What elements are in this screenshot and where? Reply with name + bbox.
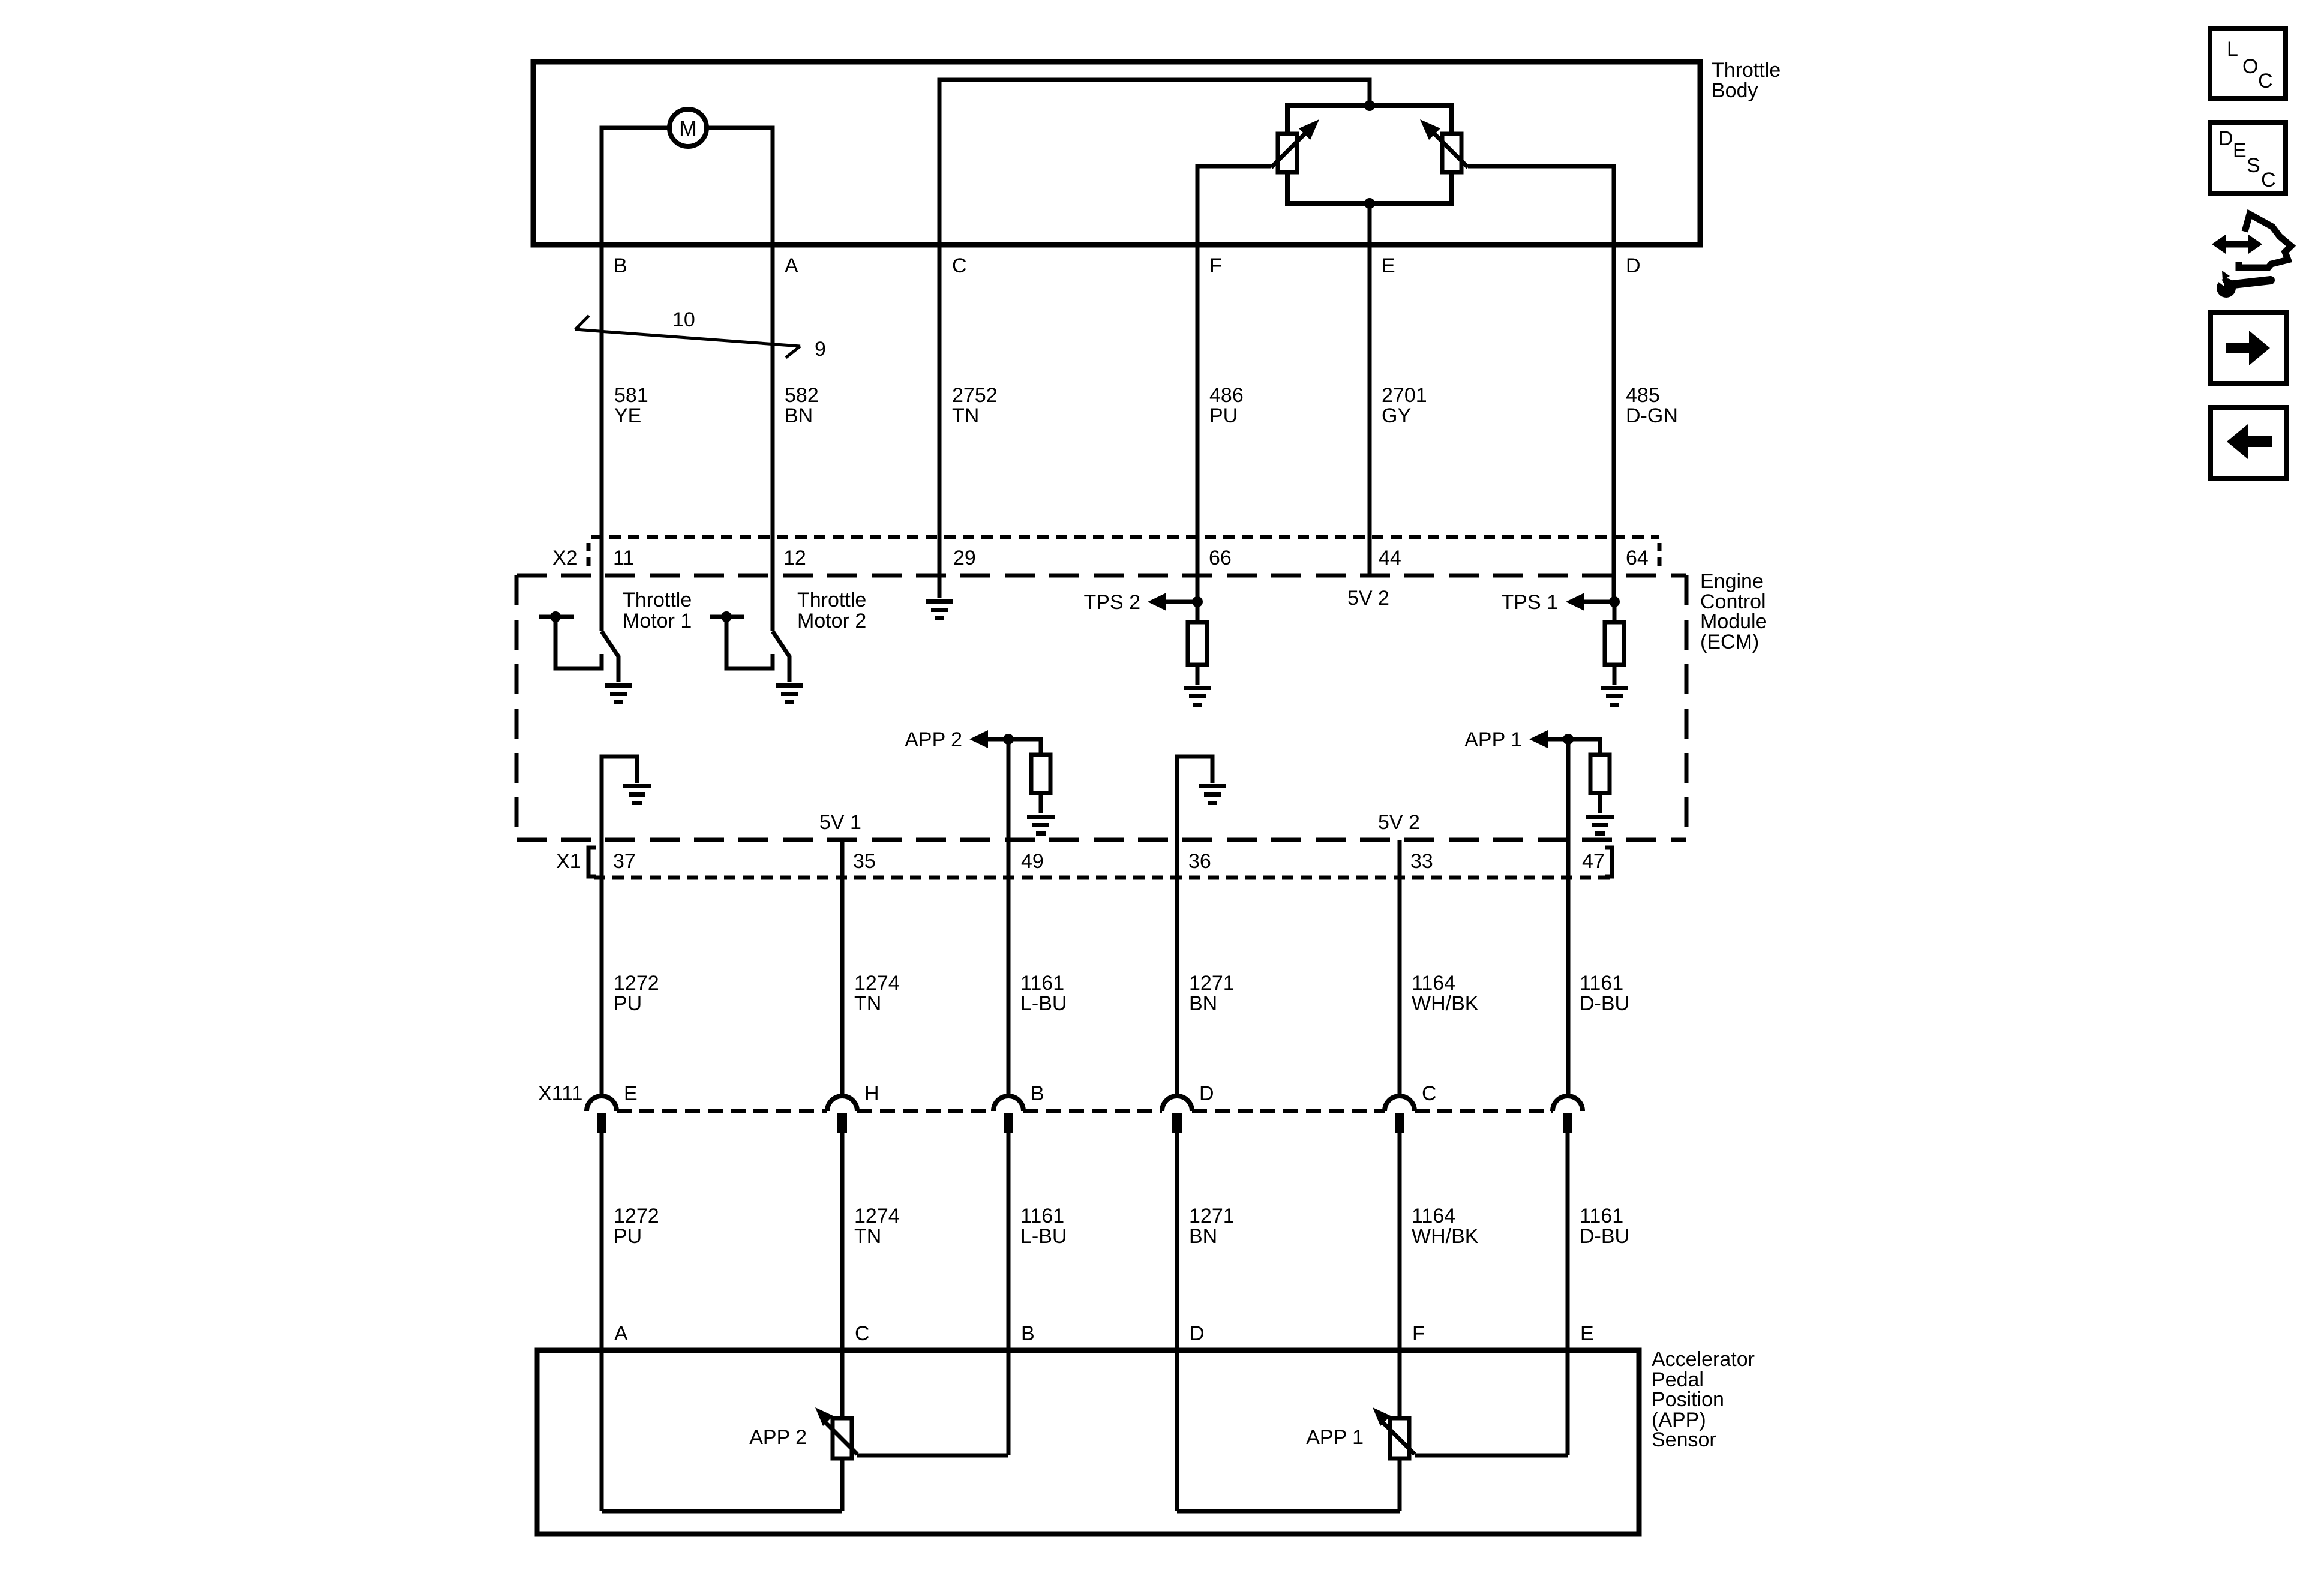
svg-text:1271: 1271: [1189, 972, 1235, 995]
svg-text:1161: 1161: [1020, 1205, 1064, 1227]
svg-text:Motor 1: Motor 1: [623, 610, 692, 632]
svg-text:5V 2: 5V 2: [1347, 587, 1389, 610]
svg-text:47: 47: [1582, 850, 1605, 873]
svg-text:PU: PU: [614, 992, 642, 1015]
svg-text:S: S: [2247, 154, 2260, 177]
svg-text:B: B: [1021, 1322, 1035, 1345]
svg-text:29: 29: [953, 547, 976, 569]
svg-text:(ECM): (ECM): [1700, 631, 1759, 653]
svg-text:581: 581: [614, 384, 648, 407]
svg-text:H: H: [864, 1082, 879, 1105]
svg-text:C: C: [855, 1322, 870, 1345]
svg-text:O: O: [2242, 55, 2258, 78]
svg-text:TN: TN: [952, 404, 979, 427]
svg-text:582: 582: [785, 384, 819, 407]
svg-text:37: 37: [613, 850, 636, 873]
svg-text:YE: YE: [614, 404, 641, 427]
svg-text:E: E: [624, 1082, 638, 1105]
svg-text:Sensor: Sensor: [1652, 1428, 1716, 1451]
svg-text:D: D: [1190, 1322, 1205, 1345]
svg-text:WH/BK: WH/BK: [1412, 992, 1479, 1015]
svg-text:C: C: [2261, 169, 2276, 191]
svg-text:1272: 1272: [614, 972, 659, 995]
svg-text:C: C: [952, 254, 967, 277]
svg-text:BN: BN: [1189, 1225, 1217, 1248]
svg-text:Engine: Engine: [1700, 570, 1764, 593]
svg-text:486: 486: [1209, 384, 1244, 407]
svg-text:TN: TN: [854, 1225, 881, 1248]
svg-text:D-BU: D-BU: [1580, 1225, 1629, 1248]
svg-text:C: C: [1422, 1082, 1437, 1105]
svg-text:TPS 2: TPS 2: [1084, 591, 1140, 614]
svg-text:1274: 1274: [854, 972, 900, 995]
svg-text:10: 10: [672, 308, 695, 331]
svg-text:Throttle: Throttle: [797, 589, 866, 611]
svg-text:Throttle: Throttle: [1712, 59, 1780, 82]
svg-text:1272: 1272: [614, 1205, 659, 1227]
svg-text:E: E: [2233, 139, 2247, 162]
svg-text:L-BU: L-BU: [1020, 1225, 1067, 1248]
svg-text:BN: BN: [1189, 992, 1217, 1015]
svg-text:11: 11: [613, 547, 634, 569]
svg-text:Module: Module: [1700, 610, 1767, 633]
svg-text:L: L: [2227, 38, 2238, 61]
svg-text:1161: 1161: [1580, 1205, 1623, 1227]
svg-text:D: D: [2218, 127, 2233, 150]
svg-text:TPS 1: TPS 1: [1502, 591, 1558, 614]
svg-text:Throttle: Throttle: [623, 589, 692, 611]
svg-text:C: C: [2258, 70, 2273, 92]
svg-text:49: 49: [1021, 850, 1044, 873]
svg-text:33: 33: [1410, 850, 1433, 873]
svg-text:5V 2: 5V 2: [1378, 811, 1420, 834]
svg-text:M: M: [679, 116, 697, 140]
svg-text:APP 1: APP 1: [1464, 728, 1522, 751]
svg-text:1161: 1161: [1580, 972, 1623, 995]
svg-text:485: 485: [1626, 384, 1660, 407]
svg-text:2701: 2701: [1382, 384, 1427, 407]
svg-text:PU: PU: [1209, 404, 1238, 427]
svg-text:PU: PU: [614, 1225, 642, 1248]
svg-text:5V 1: 5V 1: [819, 811, 861, 834]
svg-text:B: B: [614, 254, 627, 277]
svg-text:A: A: [614, 1322, 628, 1345]
svg-text:APP 2: APP 2: [749, 1426, 807, 1449]
svg-text:1274: 1274: [854, 1205, 900, 1227]
svg-text:X1: X1: [556, 850, 581, 873]
svg-text:TN: TN: [854, 992, 881, 1015]
svg-text:2752: 2752: [952, 384, 998, 407]
svg-text:D: D: [1626, 254, 1641, 277]
svg-text:WH/BK: WH/BK: [1412, 1225, 1479, 1248]
svg-text:1164: 1164: [1412, 972, 1455, 995]
svg-text:1161: 1161: [1020, 972, 1064, 995]
svg-text:Accelerator: Accelerator: [1652, 1348, 1755, 1371]
svg-text:BN: BN: [785, 404, 813, 427]
svg-text:44: 44: [1379, 547, 1401, 569]
svg-text:F: F: [1412, 1322, 1425, 1345]
svg-text:E: E: [1382, 254, 1395, 277]
svg-text:L-BU: L-BU: [1020, 992, 1067, 1015]
svg-text:Position: Position: [1652, 1388, 1724, 1411]
svg-text:66: 66: [1209, 547, 1232, 569]
svg-text:GY: GY: [1382, 404, 1411, 427]
svg-text:APP 2: APP 2: [905, 728, 962, 751]
svg-text:A: A: [785, 254, 798, 277]
svg-text:1271: 1271: [1189, 1205, 1235, 1227]
svg-text:D: D: [1199, 1082, 1214, 1105]
svg-text:Motor 2: Motor 2: [797, 610, 866, 632]
svg-text:E: E: [1580, 1322, 1594, 1345]
svg-text:D-BU: D-BU: [1580, 992, 1629, 1015]
svg-text:Body: Body: [1712, 79, 1758, 102]
svg-text:APP 1: APP 1: [1306, 1426, 1364, 1449]
svg-text:35: 35: [853, 850, 876, 873]
svg-text:D-GN: D-GN: [1626, 404, 1678, 427]
svg-text:X2: X2: [553, 547, 578, 569]
svg-text:64: 64: [1626, 547, 1649, 569]
svg-text:9: 9: [815, 338, 826, 361]
svg-text:1164: 1164: [1412, 1205, 1455, 1227]
svg-text:X111: X111: [538, 1082, 582, 1105]
svg-text:12: 12: [783, 547, 806, 569]
svg-text:B: B: [1031, 1082, 1044, 1105]
svg-text:F: F: [1209, 254, 1222, 277]
svg-text:36: 36: [1188, 850, 1211, 873]
